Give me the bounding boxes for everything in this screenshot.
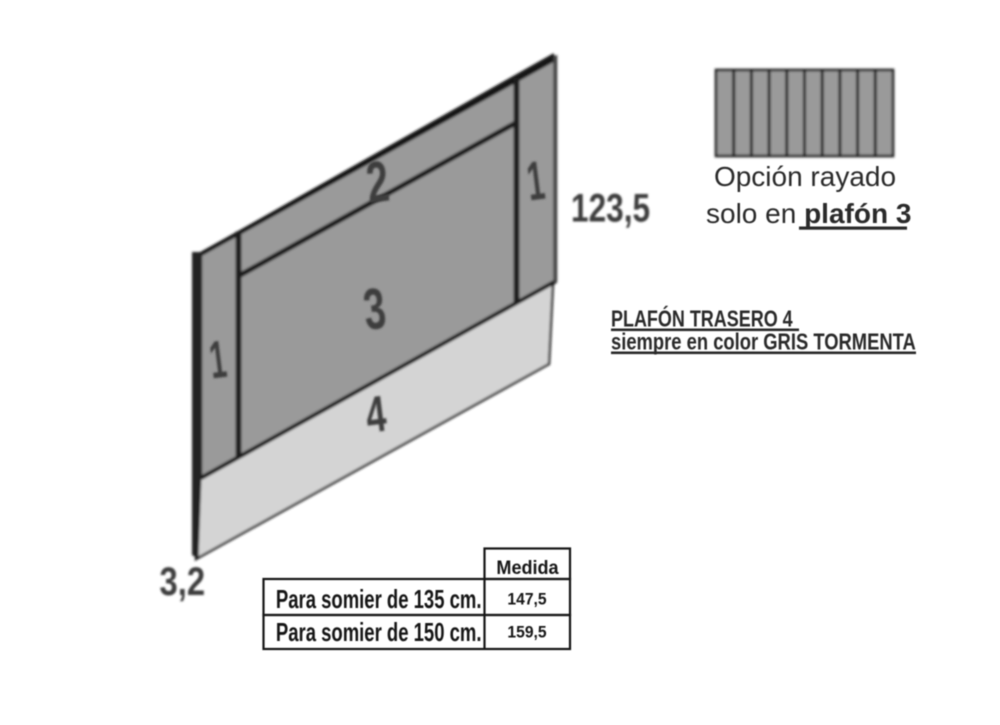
- svg-text:159,5: 159,5: [507, 623, 546, 642]
- svg-text:Medida: Medida: [496, 557, 559, 579]
- svg-text:Para somier de 150 cm.: Para somier de 150 cm.: [276, 618, 482, 647]
- svg-text:PLAFÓN TRASERO 4: PLAFÓN TRASERO 4: [611, 305, 793, 332]
- svg-text:Opción rayado: Opción rayado: [714, 161, 896, 192]
- svg-text:3,2: 3,2: [160, 559, 206, 604]
- svg-text:Para somier de 135 cm.: Para somier de 135 cm.: [276, 585, 482, 614]
- svg-text:147,5: 147,5: [507, 590, 546, 609]
- svg-text:solo en plafón 3: solo en plafón 3: [706, 198, 911, 229]
- svg-text:siempre en color GRIS TORMENTA: siempre en color GRIS TORMENTA: [611, 330, 916, 355]
- svg-text:123,5: 123,5: [571, 185, 650, 230]
